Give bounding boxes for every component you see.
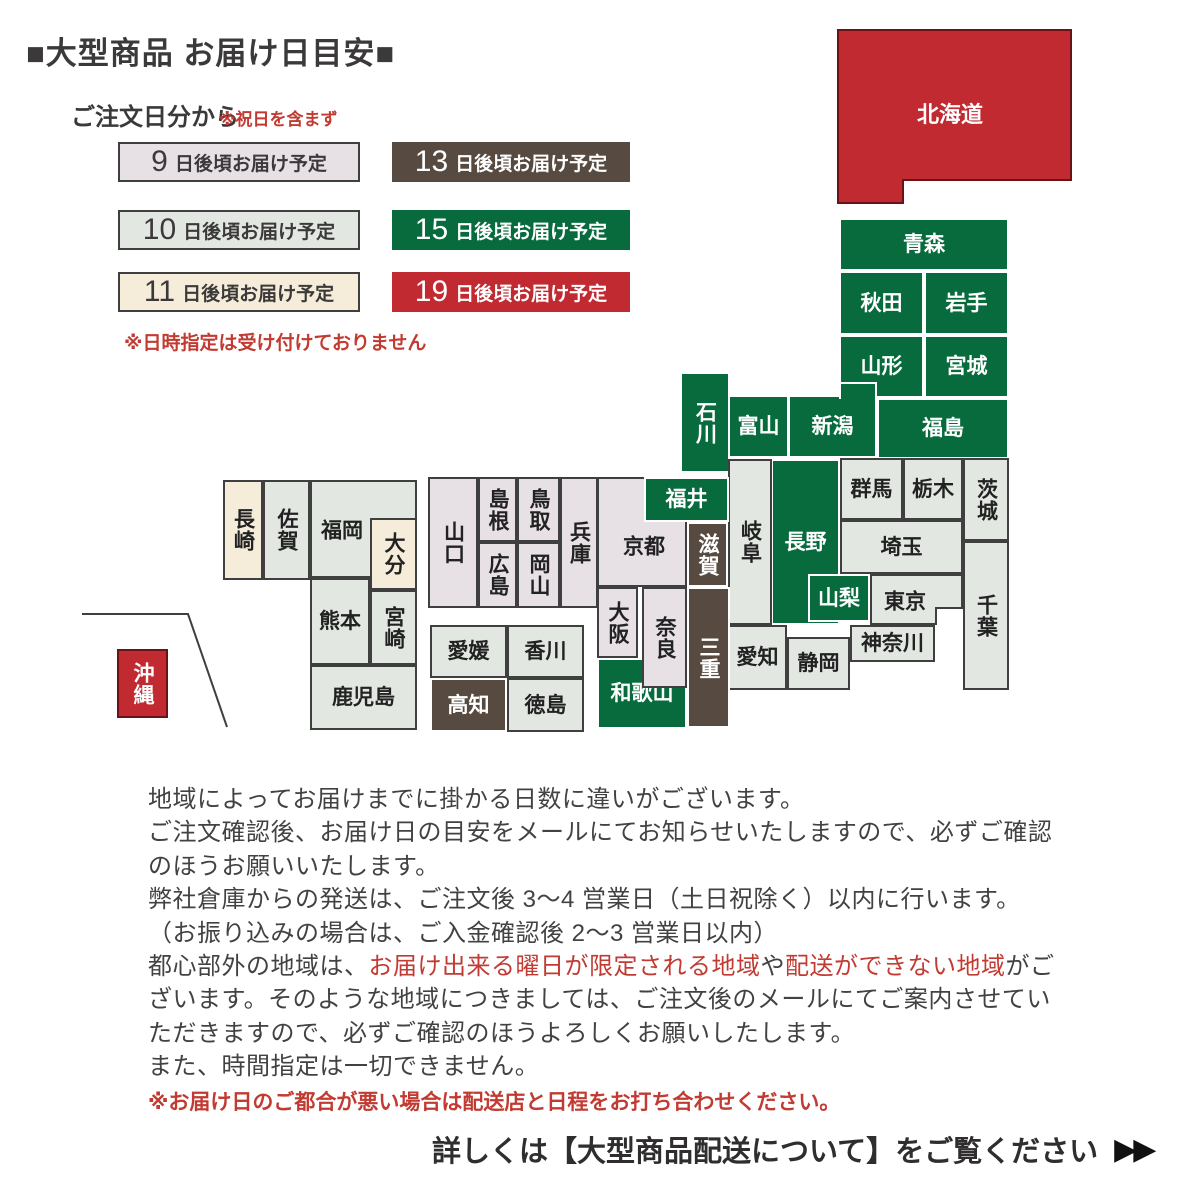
prefecture-kumamoto: 熊本 [310,578,370,665]
prefecture-iwate: 岩手 [924,271,1009,335]
prefecture-yamaguchi: 山口 [428,477,478,608]
prefecture-shimane: 島根 [478,477,517,542]
prefecture-label: 宮崎 [383,606,404,650]
prefecture-label: 三重 [698,636,719,680]
legend-days-number: 13 [415,147,448,177]
prefecture-label: 岩手 [946,293,988,314]
prefecture-kanagawa: 神奈川 [850,625,935,662]
footer-text: 詳しくは【大型商品配送について】をご覧ください [432,1128,1098,1170]
note-line: 弊社倉庫からの発送は、ご注文後 3〜4 営業日（土日祝除く）以内に行います。 [148,883,1055,916]
prefecture-label: 大阪 [607,601,628,645]
prefecture-fukushima: 福島 [877,398,1009,459]
prefecture-label: 新潟 [812,416,854,437]
prefecture-label: 福井 [666,489,708,510]
legend-days-number: 19 [415,277,448,307]
prefecture-label: 徳島 [525,695,567,716]
prefecture-label: 山口 [443,521,464,565]
legend-item-after-15-days: 15日後頃お届け予定 [392,210,630,250]
prefecture-ibaraki: 茨城 [963,458,1009,541]
note-segment: 地域によってお届けまでに掛かる日数に違いがございます。 [148,786,804,813]
prefecture-label: 福岡 [321,521,363,542]
legend-days-suffix: 日後頃お届け予定 [183,219,335,242]
prefecture-label: 滋賀 [697,533,718,577]
note-line: ざいます。そのような地域につきましては、ご注文後のメールにてご案内させてい [148,983,1055,1016]
prefecture-hiroshima: 広島 [478,542,517,608]
prefecture-gunma: 群馬 [840,458,903,520]
note-line: ただきますので、必ずご確認のほうよろしくお願いしたします。 [148,1017,1055,1050]
prefecture-label: 兵庫 [569,521,590,565]
note-line: 地域によってお届けまでに掛かる日数に違いがございます。 [148,783,1055,816]
prefecture-miyazaki: 宮崎 [370,590,417,665]
prefecture-label: 秋田 [861,293,903,314]
note-segment: （お振り込みの場合は、ご入金確認後 2〜3 営業日以内） [148,920,778,947]
prefecture-ehime: 愛媛 [430,625,507,678]
legend-days-number: 10 [143,215,176,245]
note-segment: 弊社倉庫からの発送は、ご注文後 3〜4 営業日（土日祝除く）以内に行います。 [148,886,1021,913]
map-shape-tokyo-bay [935,607,963,625]
delivery-warning-note: ※お届け日のご都合が悪い場合は配送店と日程をお打ち合わせください。 [148,1086,840,1116]
prefecture-label: 神奈川 [861,633,924,654]
prefecture-fukui: 福井 [644,477,729,522]
note-segment: 都心部外の地域は、 [148,953,369,980]
prefecture-shizuoka: 静岡 [787,637,850,690]
prefecture-kagoshima: 鹿児島 [310,665,417,730]
prefecture-hokkaido-label: 北海道 [917,97,983,129]
page-title: ■大型商品 お届け日目安■ [26,28,395,73]
prefecture-chiba: 千葉 [963,541,1009,690]
prefecture-label: 島根 [487,488,508,532]
delivery-notes: 地域によってお届けまでに掛かる日数に違いがございます。ご注文確認後、お届け日の目… [148,783,1055,1084]
footer-link-line: 詳しくは【大型商品配送について】をご覧ください ▶▶ [432,1128,1152,1170]
note-segment-red: お届け出来る曜日が限定される地域 [369,953,761,980]
prefecture-label: 長野 [785,532,827,553]
legend-item-after-10-days: 10日後頃お届け予定 [118,210,360,250]
note-line: また、時間指定は一切できません。 [148,1050,1055,1083]
prefecture-label: 佐賀 [276,508,297,552]
prefecture-aichi: 愛知 [728,625,787,690]
prefecture-label: 鹿児島 [332,687,395,708]
legend-days-number: 9 [151,147,168,177]
legend-item-after-11-days: 11日後頃お届け予定 [118,272,360,312]
prefecture-hyogo: 兵庫 [560,477,598,608]
prefecture-label: 大分 [383,532,404,576]
prefecture-label: 福島 [922,418,964,439]
prefecture-label: 石川 [695,401,716,445]
note-line: （お振り込みの場合は、ご入金確認後 2〜3 営業日以内） [148,917,1055,950]
prefecture-label: 京都 [623,537,665,558]
legend-holiday-note: ※祝日を含まず [219,105,338,130]
prefecture-label: 熊本 [319,611,361,632]
note-segment: がご [1006,953,1055,980]
prefecture-okinawa: 沖縄 [117,649,168,718]
prefecture-yamanashi: 山梨 [808,574,870,622]
prefecture-label: 香川 [525,641,567,662]
note-line: 都心部外の地域は、お届け出来る曜日が限定される地域や配送ができない地域がご [148,950,1055,983]
prefecture-label: 千葉 [976,594,997,638]
legend-item-after-19-days: 19日後頃お届け予定 [392,272,630,312]
prefecture-tochigi: 栃木 [903,458,963,520]
legend-item-after-13-days: 13日後頃お届け予定 [392,142,630,182]
note-segment: ご注文確認後、お届け日の目安をメールにてお知らせいたしますので、必ずご確認 [148,819,1052,846]
legend-days-suffix: 日後頃お届け予定 [455,281,607,304]
legend-datetime-note: ※日時指定は受け付けておりません [124,328,426,355]
prefecture-oita: 大分 [370,518,417,590]
prefecture-shiga: 滋賀 [687,522,728,587]
prefecture-label: 愛知 [737,647,779,668]
prefecture-tottori: 鳥取 [517,477,560,542]
prefecture-label: 高知 [448,695,490,716]
legend-days-suffix: 日後頃お届け予定 [175,151,327,174]
note-segment: のほうお願いいたします。 [148,853,440,880]
prefecture-tokushima: 徳島 [507,678,584,732]
legend-days-suffix: 日後頃お届け予定 [182,281,334,304]
prefecture-mie: 三重 [687,587,730,728]
prefecture-akita: 秋田 [839,271,924,335]
prefecture-osaka: 大阪 [597,587,638,658]
prefecture-saitama: 埼玉 [840,520,963,574]
delivery-estimate-page: { "page": { "title": "■大型商品 お届け日目安■" }, … [0,0,1200,1200]
prefecture-label: 鳥取 [528,488,549,532]
prefecture-kochi: 高知 [430,678,507,732]
prefecture-label: 東京 [884,591,926,612]
prefecture-label: 宮城 [946,356,988,377]
prefecture-label: 長崎 [233,508,254,552]
note-line: ご注文確認後、お届け日の目安をメールにてお知らせいたしますので、必ずご確認 [148,816,1055,849]
prefecture-label: 埼玉 [881,537,923,558]
prefecture-label: 広島 [487,553,508,597]
prefecture-label: 山梨 [818,588,860,609]
legend-days-number: 15 [415,215,448,245]
prefecture-label: 茨城 [976,478,997,522]
prefecture-aomori: 青森 [839,218,1009,271]
note-line: のほうお願いいたします。 [148,850,1055,883]
prefecture-nagasaki: 長崎 [223,480,263,580]
note-segment: ただきますので、必ずご確認のほうよろしくお願いしたします。 [148,1020,855,1047]
prefecture-label: 青森 [903,234,945,255]
prefecture-toyama: 富山 [728,395,789,458]
prefecture-label: 岐阜 [740,520,761,564]
double-right-arrow-icon: ▶▶ [1114,1132,1152,1167]
prefecture-niigata: 新潟 [788,395,877,458]
prefecture-label: 静岡 [798,653,840,674]
prefecture-label: 奈良 [654,616,675,660]
note-segment: ざいます。そのような地域につきましては、ご注文後のメールにてご案内させてい [148,986,1051,1013]
map-shape-niigata-extension [839,382,877,399]
prefecture-okayama: 岡山 [517,542,560,608]
legend-days-suffix: 日後頃お届け予定 [455,219,607,242]
prefecture-label: 岡山 [528,553,549,597]
prefecture-nara: 奈良 [642,587,687,688]
prefecture-label: 山形 [861,356,903,377]
legend-days-number: 11 [144,277,175,307]
prefecture-gifu: 岐阜 [728,459,772,625]
prefecture-label: 群馬 [851,479,893,500]
prefecture-kagawa: 香川 [507,625,584,678]
note-segment-red: 配送ができない地域 [785,953,1006,980]
prefecture-saga: 佐賀 [263,480,310,580]
note-segment: や [761,953,786,980]
legend-item-after-9-days: 9日後頃お届け予定 [118,142,360,182]
prefecture-label: 富山 [738,416,780,437]
prefecture-ishikawa: 石川 [680,372,730,473]
prefecture-label: 愛媛 [448,641,490,662]
prefecture-label: 沖縄 [132,662,153,706]
legend-days-suffix: 日後頃お届け予定 [455,151,607,174]
note-segment: また、時間指定は一切できません。 [148,1053,539,1080]
prefecture-miyagi: 宮城 [924,335,1009,398]
prefecture-label: 栃木 [912,479,954,500]
legend-heading: ご注文日分から [71,97,239,132]
